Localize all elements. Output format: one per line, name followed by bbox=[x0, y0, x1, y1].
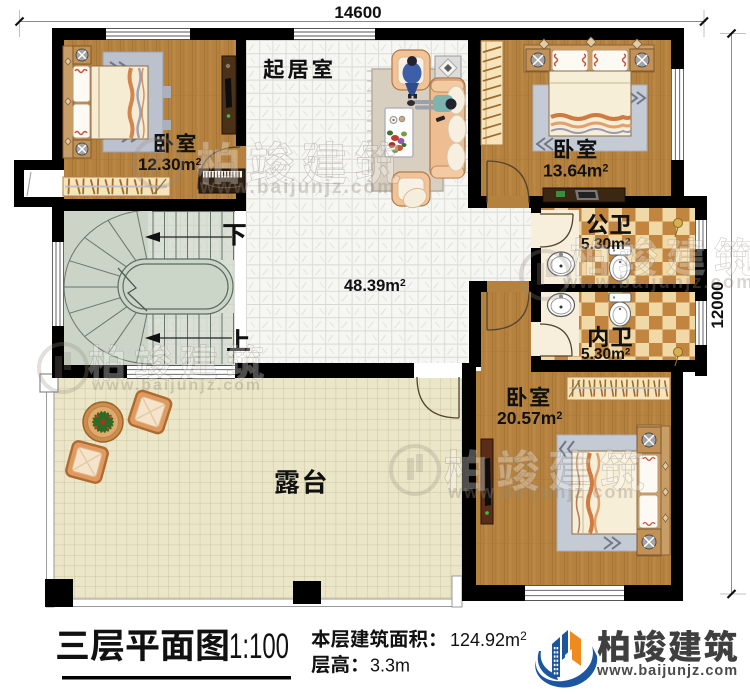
svg-text:12.30m2: 12.30m2 bbox=[138, 155, 202, 174]
svg-text:3.3m: 3.3m bbox=[370, 656, 410, 676]
svg-text:5.30m2: 5.30m2 bbox=[581, 346, 630, 363]
svg-text:www.baijunjz.com: www.baijunjz.com bbox=[199, 177, 396, 198]
svg-text:1:100: 1:100 bbox=[229, 627, 289, 666]
svg-text:13.64m2: 13.64m2 bbox=[543, 161, 608, 181]
svg-text:www.baijunjz.com: www.baijunjz.com bbox=[596, 663, 738, 679]
svg-text:48.39m2: 48.39m2 bbox=[344, 277, 406, 295]
svg-text:124.92m2: 124.92m2 bbox=[450, 629, 527, 650]
svg-text:www.baijunjz.com: www.baijunjz.com bbox=[91, 377, 262, 394]
svg-text:20.57m2: 20.57m2 bbox=[497, 408, 562, 428]
svg-text:14600: 14600 bbox=[334, 3, 381, 22]
svg-text:www.baijunjz.com: www.baijunjz.com bbox=[562, 271, 750, 292]
svg-text:www.baijunjz.com: www.baijunjz.com bbox=[447, 482, 635, 502]
